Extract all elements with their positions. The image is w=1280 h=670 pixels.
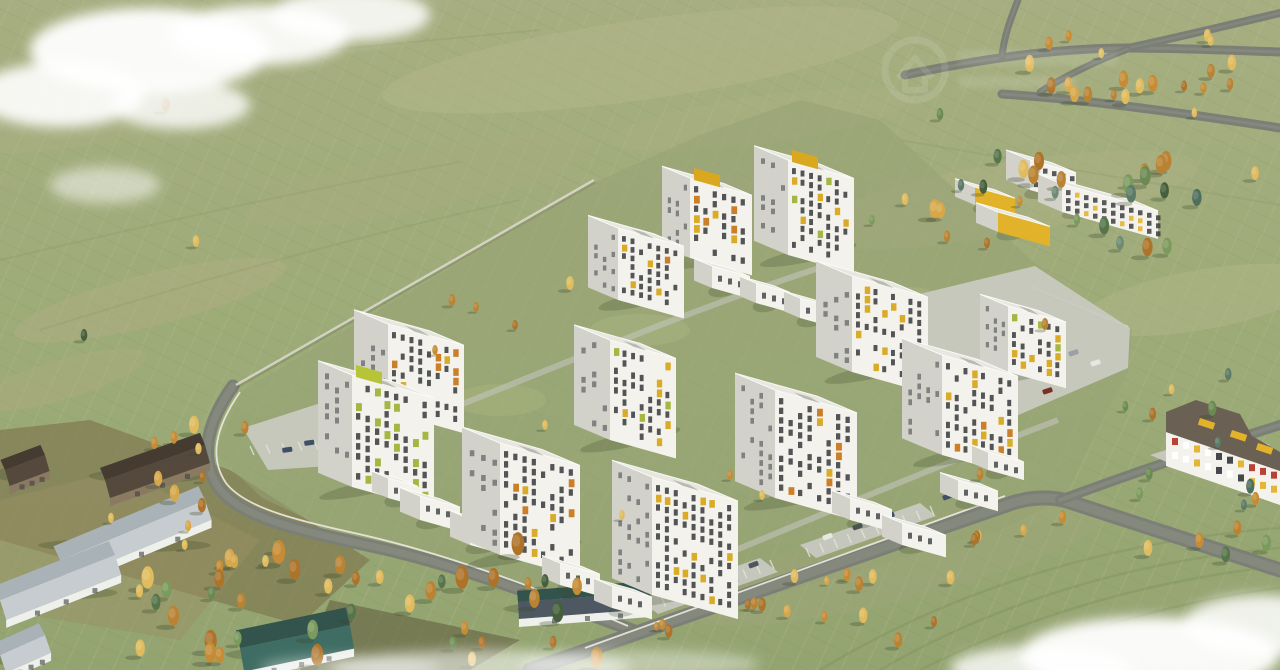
window bbox=[1012, 359, 1016, 365]
school-window bbox=[1156, 231, 1161, 236]
window bbox=[759, 393, 763, 399]
window bbox=[779, 465, 783, 471]
school-window bbox=[1147, 213, 1152, 218]
tree-highlight bbox=[870, 216, 874, 221]
window bbox=[789, 458, 793, 464]
window bbox=[427, 380, 431, 386]
window bbox=[446, 511, 450, 517]
window bbox=[946, 441, 950, 447]
window bbox=[762, 293, 766, 299]
window bbox=[523, 496, 527, 503]
window bbox=[418, 377, 422, 383]
tree-highlight bbox=[1137, 489, 1141, 495]
window bbox=[394, 454, 398, 461]
window bbox=[550, 504, 554, 511]
tree-highlight bbox=[1021, 526, 1025, 532]
window bbox=[470, 470, 475, 476]
window bbox=[741, 385, 745, 391]
window bbox=[560, 487, 564, 494]
door bbox=[139, 552, 144, 557]
window bbox=[504, 501, 508, 508]
accent-panel bbox=[569, 509, 575, 517]
window bbox=[809, 173, 813, 179]
accent-panel bbox=[665, 257, 670, 264]
window bbox=[335, 398, 339, 404]
window bbox=[1014, 467, 1018, 473]
window bbox=[603, 425, 607, 431]
window bbox=[779, 485, 783, 491]
window bbox=[648, 243, 652, 249]
window bbox=[418, 339, 422, 345]
accent-panel bbox=[375, 388, 381, 396]
school-window bbox=[1066, 198, 1071, 203]
window bbox=[935, 391, 939, 397]
accent-panel bbox=[674, 567, 680, 575]
window bbox=[541, 471, 545, 478]
window bbox=[453, 416, 457, 422]
tree-highlight bbox=[1017, 197, 1021, 202]
window bbox=[674, 558, 678, 564]
window bbox=[692, 534, 696, 540]
window bbox=[692, 524, 696, 530]
window bbox=[759, 451, 763, 457]
accent-panel bbox=[789, 487, 795, 495]
window bbox=[846, 426, 850, 432]
window bbox=[385, 421, 389, 428]
tree-highlight bbox=[894, 634, 899, 642]
window bbox=[392, 370, 396, 376]
window bbox=[665, 300, 669, 306]
tree-highlight bbox=[1208, 403, 1213, 411]
tree-highlight bbox=[620, 511, 624, 516]
tree-highlight bbox=[154, 473, 159, 481]
tree-highlight bbox=[930, 202, 937, 212]
window bbox=[935, 430, 939, 436]
window bbox=[826, 233, 830, 239]
window bbox=[569, 469, 573, 476]
window bbox=[532, 499, 536, 506]
tree-highlight bbox=[1252, 494, 1257, 501]
tree-highlight bbox=[1029, 168, 1036, 177]
window bbox=[1029, 319, 1033, 325]
tree-highlight bbox=[1100, 219, 1106, 228]
window bbox=[592, 420, 596, 426]
school-window bbox=[1120, 221, 1125, 226]
window bbox=[676, 211, 679, 217]
window bbox=[366, 416, 370, 423]
window bbox=[994, 327, 997, 332]
window bbox=[504, 531, 508, 538]
accent-panel bbox=[375, 418, 381, 426]
window bbox=[750, 437, 754, 443]
window bbox=[792, 168, 796, 174]
tree-highlight bbox=[1140, 168, 1147, 178]
tree-highlight bbox=[1207, 66, 1212, 73]
window bbox=[683, 579, 687, 585]
window bbox=[436, 411, 440, 417]
accent-panel bbox=[513, 484, 519, 492]
window bbox=[504, 461, 508, 468]
window bbox=[648, 426, 652, 432]
window bbox=[683, 550, 687, 556]
tree-highlight bbox=[376, 572, 381, 579]
accent-panel bbox=[882, 347, 887, 354]
tree-highlight bbox=[1192, 109, 1196, 114]
window bbox=[628, 598, 632, 604]
window bbox=[592, 381, 596, 387]
window bbox=[731, 216, 735, 222]
school-window bbox=[1075, 193, 1080, 198]
window bbox=[665, 411, 669, 417]
window bbox=[703, 208, 707, 214]
accent-panel bbox=[1012, 314, 1017, 321]
window bbox=[445, 366, 449, 372]
school-window bbox=[1147, 229, 1152, 234]
window bbox=[801, 235, 805, 241]
window bbox=[1021, 353, 1025, 359]
window bbox=[771, 227, 775, 233]
accent-panel bbox=[614, 348, 619, 356]
window bbox=[523, 456, 527, 463]
tree-highlight bbox=[1127, 187, 1133, 196]
window bbox=[845, 357, 849, 363]
accent-panel bbox=[703, 218, 709, 226]
window bbox=[410, 347, 414, 353]
tree-highlight bbox=[217, 561, 222, 568]
window bbox=[645, 484, 649, 490]
window bbox=[741, 199, 745, 205]
window bbox=[808, 425, 812, 431]
accent-panel bbox=[731, 226, 737, 234]
window bbox=[835, 235, 839, 241]
window bbox=[809, 219, 813, 225]
window bbox=[683, 589, 687, 595]
window bbox=[700, 517, 704, 523]
window bbox=[856, 508, 860, 514]
tree-highlight bbox=[1262, 537, 1268, 545]
window bbox=[703, 228, 707, 234]
window bbox=[826, 224, 830, 230]
window bbox=[718, 560, 722, 566]
window bbox=[356, 433, 360, 440]
accent-panel bbox=[792, 196, 797, 203]
window bbox=[768, 464, 772, 470]
window bbox=[385, 391, 389, 398]
window bbox=[404, 396, 408, 403]
window bbox=[550, 544, 554, 551]
kindergarten-window bbox=[1260, 468, 1266, 475]
school-window bbox=[1111, 203, 1116, 208]
window bbox=[631, 256, 635, 262]
tree-highlight bbox=[1143, 240, 1150, 249]
window bbox=[955, 405, 959, 411]
window bbox=[772, 295, 776, 301]
window bbox=[917, 301, 921, 307]
accent-panel bbox=[709, 500, 715, 508]
window bbox=[656, 280, 660, 286]
window bbox=[692, 505, 696, 511]
accent-panel bbox=[445, 356, 450, 364]
accent-panel bbox=[356, 403, 362, 411]
tree-highlight bbox=[958, 181, 962, 187]
window bbox=[657, 399, 661, 405]
window bbox=[612, 269, 615, 274]
tree-highlight bbox=[151, 438, 155, 444]
school-window bbox=[1120, 213, 1125, 218]
window bbox=[792, 242, 796, 248]
window bbox=[656, 263, 660, 269]
school-window bbox=[1093, 214, 1098, 219]
side-facade bbox=[462, 427, 500, 555]
window bbox=[639, 275, 643, 281]
tree-highlight bbox=[433, 346, 437, 351]
accent-panel bbox=[394, 444, 400, 452]
window bbox=[946, 363, 950, 369]
window bbox=[709, 577, 713, 583]
window bbox=[345, 382, 349, 388]
window bbox=[639, 292, 643, 298]
window bbox=[834, 353, 838, 359]
tree-highlight bbox=[142, 569, 150, 580]
window bbox=[541, 501, 545, 508]
tree-highlight bbox=[489, 570, 496, 580]
window bbox=[964, 407, 968, 413]
window bbox=[891, 331, 895, 337]
tree-highlight bbox=[659, 620, 663, 626]
window bbox=[418, 358, 422, 364]
accent-panel bbox=[366, 476, 372, 484]
school-window bbox=[1084, 203, 1089, 208]
window bbox=[638, 601, 642, 607]
window bbox=[908, 429, 912, 435]
accent-panel bbox=[818, 194, 823, 201]
window bbox=[827, 440, 831, 446]
window bbox=[909, 317, 913, 323]
window bbox=[492, 480, 497, 486]
window bbox=[818, 185, 822, 191]
window bbox=[917, 374, 921, 380]
window bbox=[656, 504, 660, 510]
window bbox=[639, 284, 643, 290]
tree-highlight bbox=[205, 645, 212, 655]
tree-highlight bbox=[937, 110, 941, 116]
window bbox=[410, 366, 414, 372]
window bbox=[366, 436, 370, 443]
accent-panel bbox=[972, 370, 977, 378]
tree-highlight bbox=[1111, 91, 1115, 96]
tree-highlight bbox=[81, 331, 85, 337]
window bbox=[645, 532, 649, 538]
window bbox=[741, 257, 745, 263]
window bbox=[759, 479, 763, 485]
window bbox=[826, 242, 830, 248]
tree-highlight bbox=[1117, 238, 1122, 245]
window bbox=[410, 356, 414, 362]
kindergarten-window bbox=[1238, 474, 1244, 481]
accent-panel bbox=[692, 553, 698, 561]
tree-highlight bbox=[231, 556, 236, 563]
window bbox=[640, 424, 644, 430]
window bbox=[700, 507, 704, 513]
window bbox=[492, 510, 497, 516]
school-window bbox=[1138, 218, 1143, 223]
school-window bbox=[1084, 195, 1089, 200]
window bbox=[972, 400, 976, 406]
window bbox=[798, 471, 802, 477]
window bbox=[614, 407, 618, 413]
tree-highlight bbox=[1122, 91, 1127, 99]
tree-highlight bbox=[984, 239, 988, 244]
tree-highlight bbox=[335, 558, 342, 568]
window bbox=[1021, 326, 1025, 332]
window bbox=[481, 485, 486, 491]
tree-highlight bbox=[1059, 512, 1064, 519]
accent-panel bbox=[1055, 353, 1060, 360]
tree-highlight bbox=[512, 535, 520, 547]
window bbox=[569, 489, 573, 496]
school-window bbox=[1147, 221, 1152, 226]
window bbox=[665, 265, 669, 271]
window bbox=[846, 436, 850, 442]
tree-highlight bbox=[205, 633, 213, 644]
window bbox=[648, 407, 652, 413]
window bbox=[532, 469, 536, 476]
window bbox=[1007, 400, 1011, 406]
tree-highlight bbox=[237, 595, 242, 603]
accent-panel bbox=[683, 512, 689, 520]
window bbox=[808, 483, 812, 489]
tree-highlight bbox=[931, 617, 935, 623]
window bbox=[631, 247, 635, 253]
window bbox=[401, 335, 405, 341]
window bbox=[504, 521, 508, 528]
window bbox=[513, 454, 517, 461]
window bbox=[656, 572, 660, 578]
tree-highlight bbox=[324, 580, 329, 588]
school-window bbox=[1052, 171, 1057, 176]
window bbox=[581, 387, 585, 393]
window bbox=[964, 427, 968, 433]
tree-highlight bbox=[1123, 177, 1130, 187]
kindergarten-window bbox=[1271, 486, 1277, 493]
window bbox=[668, 197, 671, 203]
window bbox=[759, 460, 763, 466]
window bbox=[657, 429, 661, 435]
window bbox=[759, 470, 763, 476]
window bbox=[618, 569, 622, 575]
window bbox=[789, 449, 793, 455]
window bbox=[972, 429, 976, 435]
window bbox=[808, 435, 812, 441]
window bbox=[909, 308, 913, 314]
window bbox=[818, 203, 822, 209]
accent-panel bbox=[665, 363, 670, 371]
window bbox=[1002, 331, 1005, 336]
accent-panel bbox=[972, 380, 977, 388]
window bbox=[798, 442, 802, 448]
window bbox=[1007, 410, 1011, 416]
window bbox=[771, 163, 775, 169]
window bbox=[618, 596, 622, 602]
accent-panel bbox=[1047, 360, 1052, 367]
side-facade bbox=[574, 325, 610, 440]
side-facade bbox=[612, 460, 652, 595]
accent-panel bbox=[453, 368, 458, 376]
tree-highlight bbox=[530, 591, 537, 601]
window bbox=[835, 245, 839, 251]
accent-panel bbox=[694, 196, 700, 204]
accent-panel bbox=[835, 208, 840, 215]
tree-highlight bbox=[1150, 409, 1154, 415]
accent-panel bbox=[955, 444, 960, 452]
window bbox=[648, 286, 652, 292]
window bbox=[371, 346, 375, 352]
window bbox=[1047, 351, 1051, 357]
window bbox=[692, 591, 696, 597]
window bbox=[994, 462, 998, 468]
window bbox=[779, 437, 783, 443]
tree-highlight bbox=[760, 491, 764, 496]
window bbox=[366, 446, 370, 453]
window bbox=[761, 158, 765, 164]
window bbox=[356, 413, 360, 420]
window bbox=[718, 531, 722, 537]
tree-highlight bbox=[944, 232, 948, 238]
tree-highlight bbox=[1057, 173, 1063, 181]
window bbox=[856, 303, 860, 309]
window bbox=[835, 226, 839, 232]
window bbox=[917, 311, 921, 317]
window bbox=[656, 246, 660, 252]
window bbox=[972, 390, 976, 396]
tree-highlight bbox=[215, 572, 221, 581]
accent-panel bbox=[385, 401, 391, 409]
window bbox=[990, 395, 994, 401]
tree-highlight bbox=[824, 577, 827, 581]
accent-panel bbox=[818, 231, 823, 238]
accent-panel bbox=[836, 443, 842, 451]
window bbox=[665, 517, 669, 523]
window bbox=[665, 526, 669, 532]
tree-highlight bbox=[525, 579, 529, 585]
accent-panel bbox=[817, 418, 823, 426]
kindergarten-window bbox=[1238, 460, 1244, 467]
kindergarten-window bbox=[1249, 464, 1255, 471]
window bbox=[809, 210, 813, 216]
window bbox=[356, 473, 360, 480]
tree-highlight bbox=[977, 470, 981, 476]
tree-highlight bbox=[216, 649, 222, 657]
window bbox=[335, 448, 339, 454]
kindergarten-window bbox=[1183, 456, 1189, 463]
window bbox=[423, 462, 427, 469]
window bbox=[946, 422, 950, 428]
window bbox=[532, 539, 536, 546]
window bbox=[674, 490, 678, 496]
tree-highlight bbox=[552, 604, 559, 615]
tree-highlight bbox=[273, 543, 281, 555]
accent-panel bbox=[640, 414, 645, 422]
window bbox=[926, 387, 930, 393]
window bbox=[404, 466, 408, 473]
tree-highlight bbox=[438, 576, 443, 583]
school-window bbox=[1111, 211, 1116, 216]
window bbox=[665, 291, 669, 297]
window bbox=[731, 197, 735, 203]
kindergarten-window bbox=[1271, 472, 1277, 479]
window bbox=[618, 559, 622, 565]
window bbox=[375, 428, 379, 435]
